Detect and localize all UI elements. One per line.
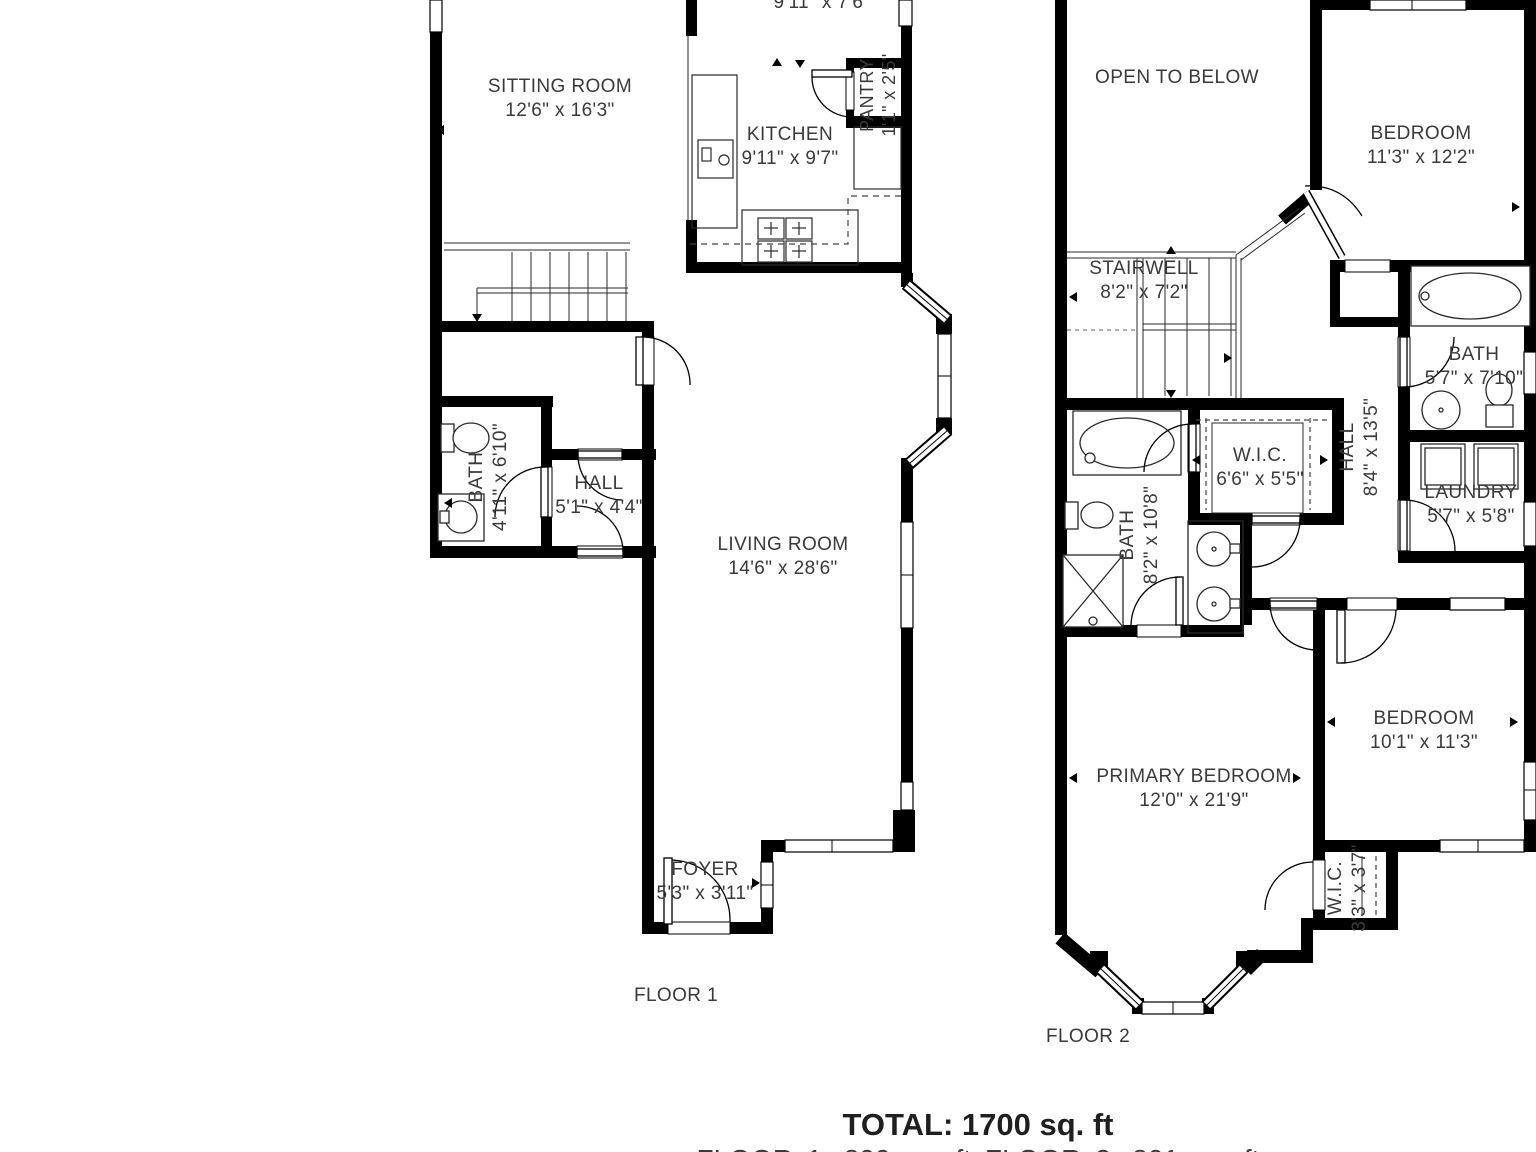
- room-name: HALL: [1336, 398, 1360, 496]
- total-area-text: TOTAL: 1700 sq. ft: [842, 1107, 1113, 1143]
- room-name: BEDROOM: [1367, 122, 1475, 146]
- room-label-bedroom-bottom: BEDROOM 10'1" x 11'3": [1370, 707, 1478, 755]
- room-name: PANTRY: [856, 53, 878, 136]
- room-label-laundry: LAUNDRY 5'7" x 5'8": [1424, 481, 1517, 529]
- room-dims: 5'7" x 5'8": [1424, 505, 1517, 529]
- room-name: W.I.C.: [1324, 844, 1348, 931]
- room-label-bath-hall: BATH 5'7" x 7'10": [1425, 343, 1523, 391]
- stair-arrow-down-icon: [1166, 390, 1176, 398]
- room-name: SITTING ROOM: [488, 75, 632, 99]
- room-dims: 5'3" x 3'11": [656, 882, 753, 906]
- room-name: FOYER: [656, 858, 753, 882]
- room-name: W.I.C.: [1216, 444, 1303, 468]
- floor-plan: 9'11" x 7'6" SITTING ROOM 12'6" x 16'3" …: [0, 0, 1536, 1152]
- stair-arrow-up-icon: [1166, 246, 1176, 254]
- room-label-bath-floor1: BATH 4'11" x 6'10": [465, 423, 513, 531]
- room-name: PRIMARY BEDROOM: [1096, 765, 1291, 789]
- room-label-open-to-below: OPEN TO BELOW: [1095, 66, 1259, 90]
- room-dims: 5'7" x 7'10": [1425, 367, 1523, 391]
- room-name: LIVING ROOM: [717, 533, 848, 557]
- room-dims: 3'3" x 3'7": [1348, 844, 1372, 931]
- stair-arrow-down-icon: [472, 314, 482, 322]
- room-dims: 12'6" x 16'3": [488, 99, 632, 123]
- room-name: BEDROOM: [1370, 707, 1478, 731]
- room-dims: 8'4" x 13'5": [1360, 398, 1384, 496]
- room-label-stairwell: STAIRWELL 8'2" x 7'2": [1089, 257, 1199, 305]
- floor-breakdown-text: FLOOR 1: 899 sq. ft FLOOR 2: 801 sq. ft: [697, 1144, 1260, 1152]
- room-dims: 1'1" x 2'5": [878, 53, 900, 136]
- room-dims: 14'6" x 28'6": [717, 557, 848, 581]
- room-dims: 8'2" x 10'8": [1140, 486, 1164, 584]
- room-name: KITCHEN: [741, 123, 838, 147]
- floor2-tag: FLOOR 2: [1046, 1026, 1130, 1048]
- room-dims: 9'11" x 9'7": [741, 147, 838, 171]
- room-name: STAIRWELL: [1089, 257, 1199, 281]
- floor1-doors: [495, 70, 852, 924]
- room-label-wic-primary: W.I.C. 3'3" x 3'7": [1324, 844, 1372, 931]
- room-name: BATH: [465, 423, 489, 531]
- room-dims: 10'1" x 11'3": [1370, 731, 1478, 755]
- room-dims: 6'6" x 5'5": [1216, 468, 1303, 492]
- floor2-bay-windows: [1100, 968, 1244, 1006]
- room-dims: 8'2" x 7'2": [1089, 281, 1199, 305]
- room-label-hall-floor1: HALL 5'1" x 4'4": [555, 472, 642, 520]
- room-name: BATH: [1425, 343, 1523, 367]
- room-label-sitting: SITTING ROOM 12'6" x 16'3": [488, 75, 632, 123]
- room-name: OPEN TO BELOW: [1095, 66, 1259, 90]
- room-label-foyer: FOYER 5'3" x 3'11": [656, 858, 753, 906]
- room-label-wic-hall: W.I.C. 6'6" x 5'5": [1216, 444, 1303, 492]
- room-label-living: LIVING ROOM 14'6" x 28'6": [717, 533, 848, 581]
- room-name: LAUNDRY: [1424, 481, 1517, 505]
- room-label-bath-primary: BATH 8'2" x 10'8": [1116, 486, 1164, 584]
- room-label-dining: 9'11" x 7'6": [773, 0, 870, 15]
- room-dims: 12'0" x 21'9": [1096, 789, 1291, 813]
- room-dims: 9'11" x 7'6": [773, 0, 870, 15]
- floor1-stairs: [444, 243, 630, 321]
- floor1-tag: FLOOR 1: [634, 985, 718, 1007]
- room-dims: 5'1" x 4'4": [555, 496, 642, 520]
- room-label-hall-floor2: HALL 8'4" x 13'5": [1336, 398, 1384, 496]
- room-name: HALL: [555, 472, 642, 496]
- kitchen-counter-dashed: [690, 196, 901, 244]
- room-name: BATH: [1116, 486, 1140, 584]
- room-label-pantry: PANTRY 1'1" x 2'5": [856, 53, 900, 136]
- room-dims: 11'3" x 12'2": [1367, 146, 1475, 170]
- room-label-bedroom-top: BEDROOM 11'3" x 12'2": [1367, 122, 1475, 170]
- room-dims: 4'11" x 6'10": [489, 423, 513, 531]
- room-label-kitchen: KITCHEN 9'11" x 9'7": [741, 123, 838, 171]
- room-label-primary-bedroom: PRIMARY BEDROOM 12'0" x 21'9": [1096, 765, 1291, 813]
